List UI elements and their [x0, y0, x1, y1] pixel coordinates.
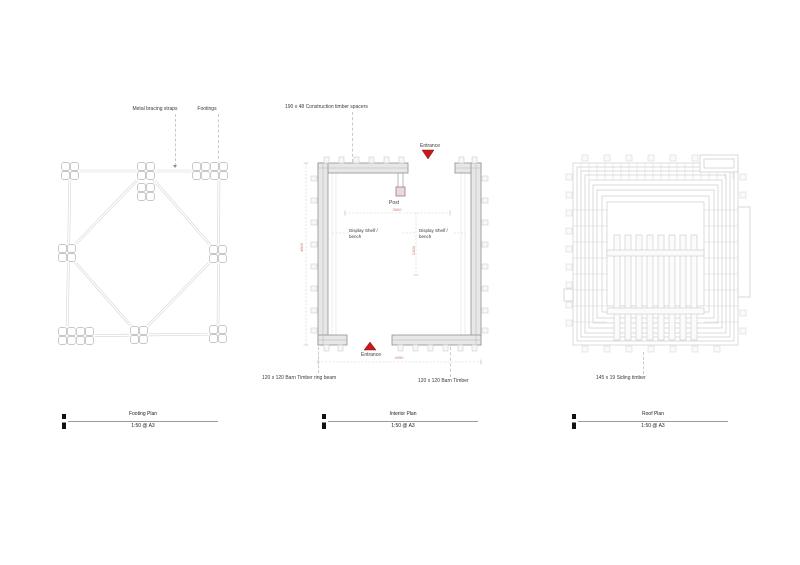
- dimension-overall-width: 4050: [391, 356, 407, 360]
- entrance-bottom-triangle-icon: [364, 342, 376, 350]
- roof-center-planks: [607, 235, 704, 340]
- footing-plan-title: Footing Plan: [68, 412, 218, 417]
- footing-plan-drawing: [52, 152, 237, 347]
- drawing-sheet: Metal bracing straps Footings: [0, 0, 800, 565]
- interior-scale-bar-icon: [322, 414, 326, 429]
- label-construction-spacers: 190 x 48 Construction timber spacers: [285, 104, 368, 110]
- interior-plan-drawing: [298, 140, 498, 370]
- footing-title-rule: [68, 421, 218, 422]
- label-siding-timber: 145 x 19 Siding timber: [596, 375, 646, 381]
- interior-plan-scale: 1:50 @ A3: [328, 424, 478, 429]
- label-entrance-bottom: Entrance: [353, 352, 389, 358]
- label-ring-beam: 120 x 120 Barn Timber ring beam: [262, 375, 336, 381]
- leader-ring-beam: [318, 347, 319, 373]
- interior-plan-title: Interior Plan: [328, 412, 478, 417]
- display-shelf-left-line1: Display Shelf /: [349, 228, 378, 233]
- display-shelf-right-line2: bench: [419, 234, 431, 239]
- roof-plan-scale: 1:50 @ A3: [578, 424, 728, 429]
- roof-purlin-lines: [573, 210, 738, 322]
- display-shelf-left-line2: bench: [349, 234, 361, 239]
- roof-plan-title: Roof Plan: [578, 412, 728, 417]
- footing-plan-footings: [58, 162, 229, 346]
- roof-scale-bar-icon: [572, 414, 576, 429]
- dimension-left-height: 4800: [300, 243, 304, 252]
- label-barn-timber: 120 x 120 Barn Timber: [418, 378, 469, 384]
- leader-siding-timber: [643, 352, 644, 374]
- footing-scale-bar-icon: [62, 414, 66, 429]
- interior-spacer-ticks: [311, 157, 488, 351]
- interior-title-rule: [328, 421, 478, 422]
- label-footings: Footings: [182, 106, 232, 112]
- label-display-shelf-left: Display Shelf / bench: [349, 228, 385, 239]
- leader-barn-timber: [450, 347, 451, 377]
- label-display-shelf-right: Display Shelf / bench: [419, 228, 455, 239]
- display-shelf-right-line1: Display Shelf /: [419, 228, 448, 233]
- dimension-inner-width: 3600: [389, 208, 405, 212]
- label-post: Post: [380, 200, 408, 206]
- interior-dimension-ticks: [304, 163, 482, 365]
- entrance-top-triangle-icon: [422, 150, 434, 159]
- roof-plan-drawing: [560, 150, 755, 365]
- post-drawing: [396, 173, 405, 196]
- footing-plan-scale: 1:50 @ A3: [68, 424, 218, 429]
- dimension-mid-height: 2400: [412, 246, 416, 255]
- display-shelf-lines: [332, 173, 465, 335]
- roof-title-rule: [578, 421, 728, 422]
